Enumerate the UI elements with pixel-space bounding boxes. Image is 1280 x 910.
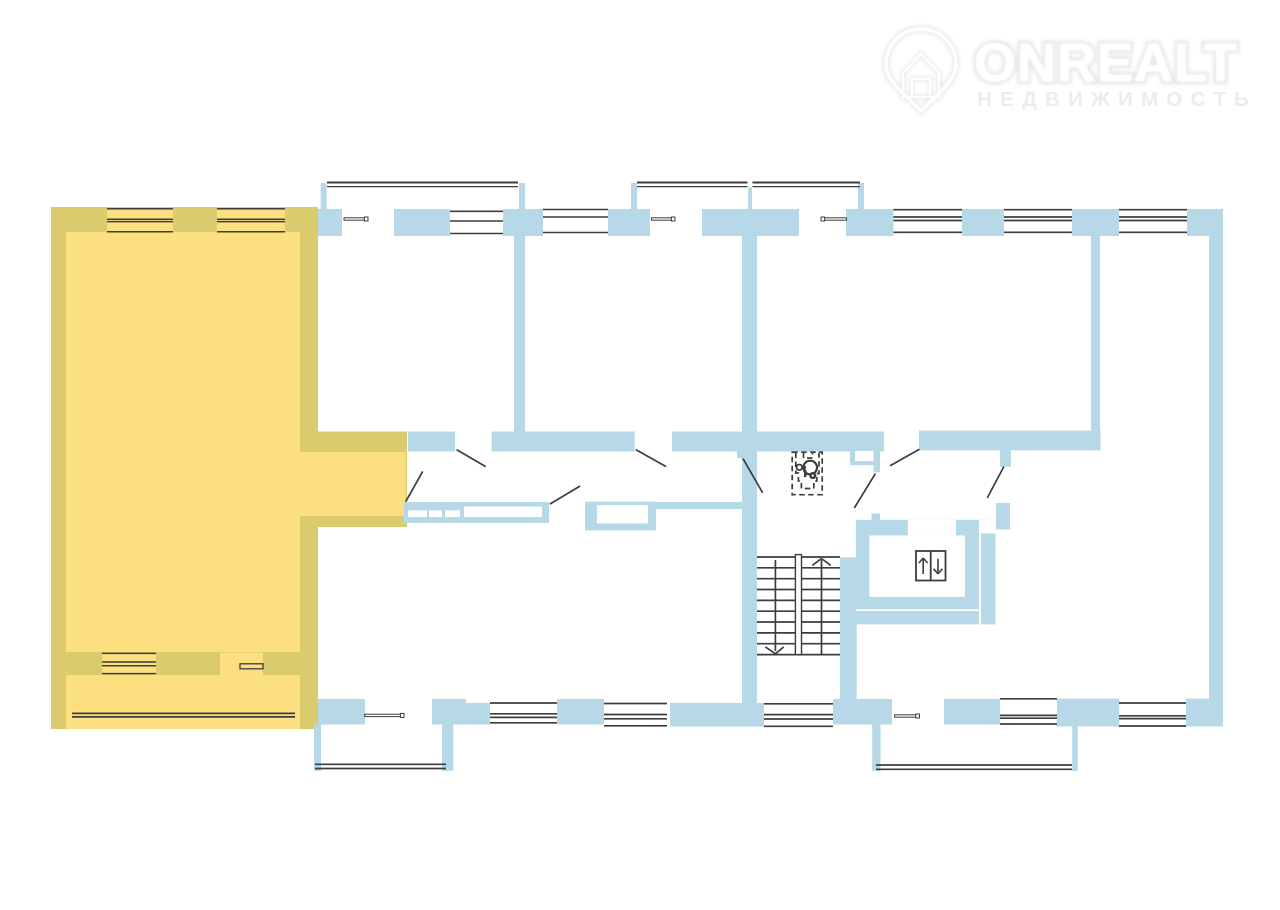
svg-text:ONREALT: ONREALT (974, 33, 1238, 93)
svg-text:НЕДВИЖИМОСТЬ: НЕДВИЖИМОСТЬ (977, 88, 1257, 111)
